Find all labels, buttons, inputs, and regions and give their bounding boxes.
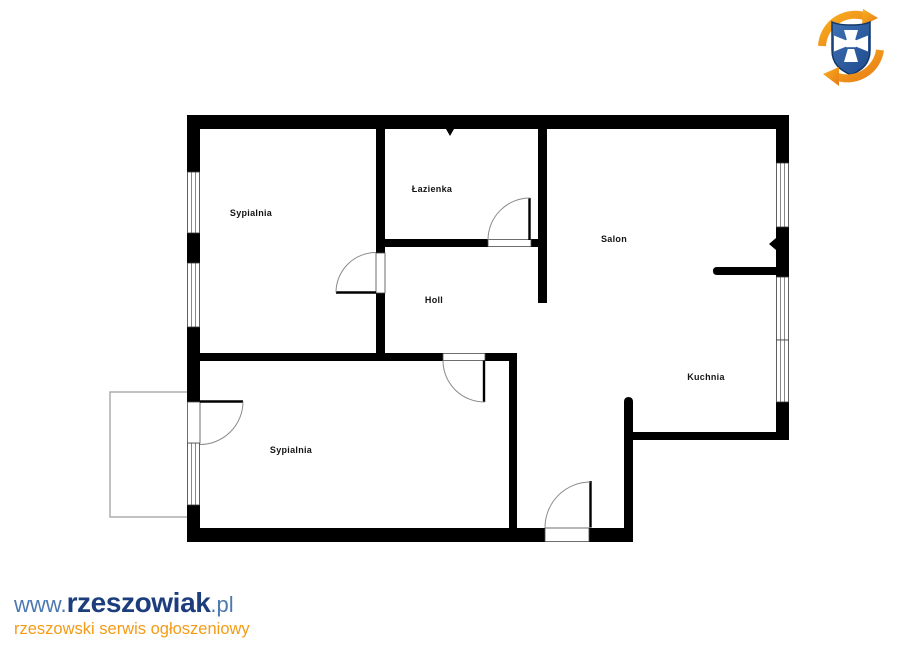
wall-outer-right-seg1 (776, 115, 789, 163)
wall-outer-left-seg1 (187, 115, 200, 172)
wall-joint-mark (769, 238, 776, 250)
watermark-brand: rzeszowiak (67, 589, 211, 617)
window (777, 340, 789, 402)
room-label-salon: Salon (601, 234, 627, 244)
window (777, 163, 789, 227)
wall-outer-top (187, 115, 789, 129)
door-bedroom2 (443, 354, 485, 403)
wall-bathroom-left-seg1 (376, 115, 385, 253)
window (777, 277, 789, 340)
wall-hall-bottom-seg1 (196, 353, 443, 361)
watermark-url: www.rzeszowiak.pl (14, 589, 250, 617)
door-entrance (545, 481, 591, 542)
wall-joint-mark (446, 129, 454, 136)
rzeszowiak-crest-logo (810, 6, 890, 90)
watermark-url-prefix: www. (14, 594, 67, 616)
door-bathroom (488, 198, 531, 247)
room-label-lazienka: Łazienka (412, 184, 453, 194)
room-label-holl: Holl (425, 295, 443, 305)
watermark-url-suffix: .pl (210, 594, 233, 616)
window (188, 172, 200, 233)
room-label-kuchnia: Kuchnia (687, 372, 725, 382)
door-bedroom1 (336, 253, 385, 294)
door-balcony (188, 402, 244, 445)
wall-salon-left (538, 115, 547, 303)
wall-bathroom-bottom-seg1 (376, 239, 488, 247)
wall-outer-left-seg2 (187, 233, 200, 263)
wall-kitchen-bottom (624, 432, 789, 440)
wall-outer-bottom-seg1 (187, 528, 545, 542)
logo-shield-icon (832, 22, 870, 75)
wall-kitchen-salon-stub (713, 267, 789, 275)
wall-kitchen-left (624, 397, 633, 542)
page: Sypialnia Łazienka Salon Holl Kuchnia Sy… (0, 0, 900, 658)
window (188, 443, 200, 505)
floor-plan: Sypialnia Łazienka Salon Holl Kuchnia Sy… (0, 0, 900, 658)
balcony-outline (110, 392, 197, 517)
wall-outer-left-seg3 (187, 327, 200, 402)
window (188, 263, 200, 327)
room-label-sypialnia-1: Sypialnia (230, 208, 273, 218)
watermark: www.rzeszowiak.pl rzeszowski serwis ogło… (14, 589, 250, 638)
watermark-tagline: rzeszowski serwis ogłoszeniowy (14, 621, 250, 638)
wall-bathroom-left-seg2 (376, 293, 385, 361)
room-label-sypialnia-2: Sypialnia (270, 445, 313, 455)
wall-corridor-left (509, 353, 517, 542)
